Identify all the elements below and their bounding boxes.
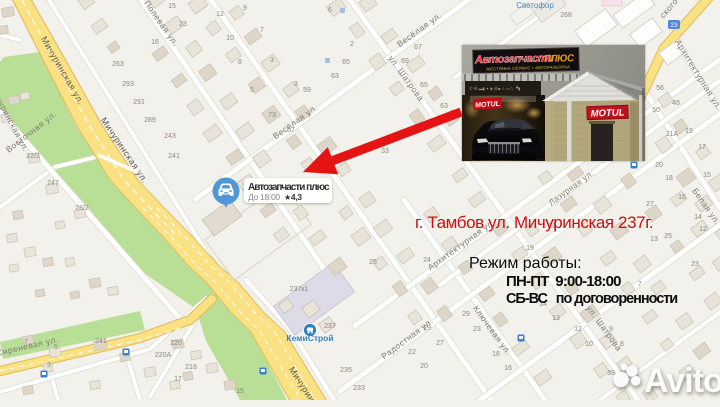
svg-text:Avito: Avito	[644, 362, 720, 400]
